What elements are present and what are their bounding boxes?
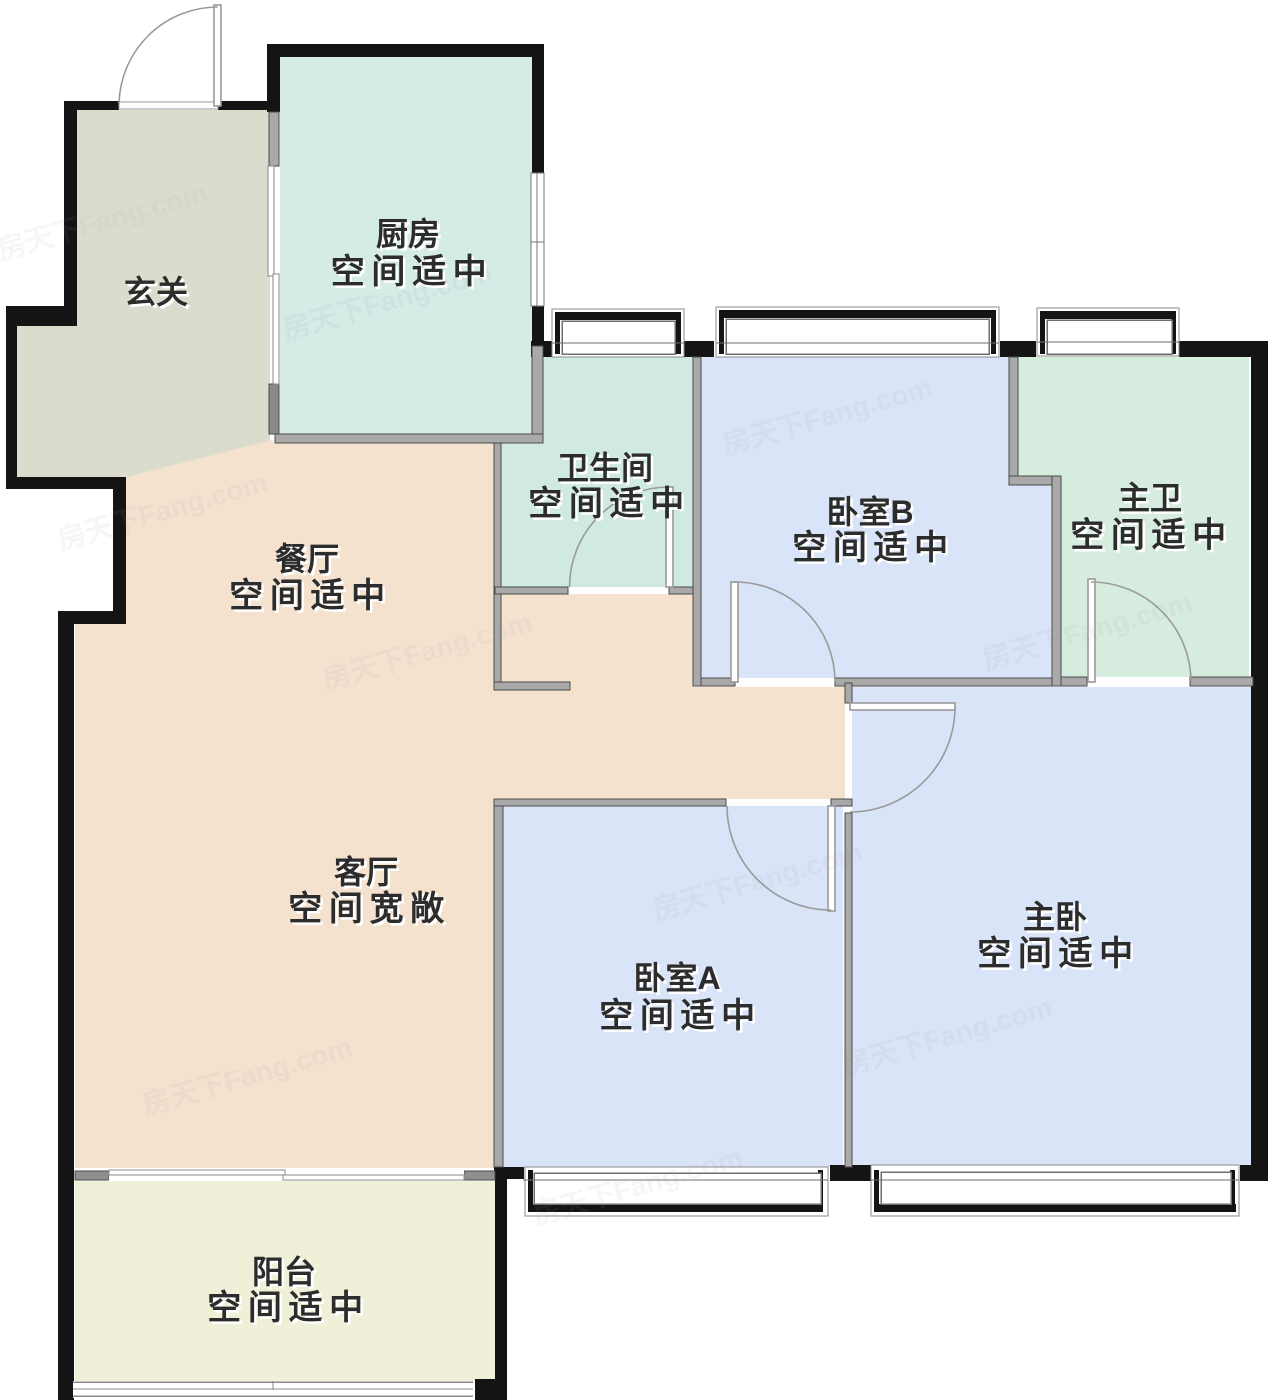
svg-text:玄关玄关: 玄关玄关 [124, 274, 191, 313]
